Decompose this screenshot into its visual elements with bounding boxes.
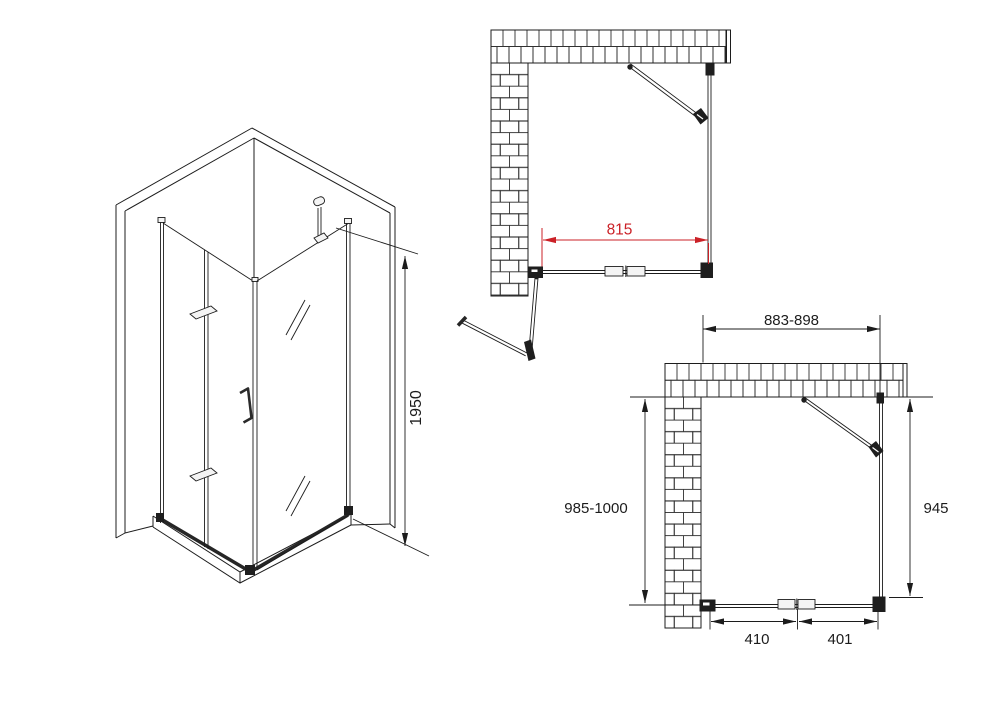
door-hinge-top: [190, 306, 217, 319]
brick-wall-left: [665, 397, 701, 628]
iso-support-post: [313, 196, 328, 243]
iso-view: 1950: [116, 128, 429, 583]
glass-shine-marks: [286, 300, 310, 516]
brick-wall-top: [665, 364, 903, 398]
iso-side-panel: [257, 219, 352, 571]
fold-clamp-right: [627, 267, 645, 277]
fold-hinge-block: [524, 340, 536, 362]
iso-walls: [116, 128, 395, 538]
wall-end-cap: [903, 364, 907, 398]
height-dimension-label: 1950: [408, 390, 425, 426]
door-hinge-bottom: [190, 468, 217, 481]
door-half-left-label: 410: [744, 631, 769, 648]
fixed-side-panel: [877, 393, 885, 608]
fold-clamp-left: [605, 267, 623, 277]
front-width-label: 883-898: [764, 312, 819, 329]
support-bar: [801, 397, 883, 457]
wall-end-cap: [727, 30, 731, 63]
fixed-side-panel: [706, 64, 715, 269]
support-bar: [627, 64, 708, 125]
door-handle: [240, 389, 252, 423]
side-depth-label: 985-1000: [564, 500, 627, 517]
wall-anchor-bracket: [877, 393, 885, 404]
bottom-rail-left: [161, 519, 249, 571]
side-panel-dimension: 945: [889, 399, 949, 598]
corner-bracket: [701, 263, 714, 279]
plan-closed-view: 883-898 985-1000 945 410 401: [564, 312, 948, 648]
brick-wall-top: [491, 30, 726, 63]
entry-width-label: 815: [607, 222, 633, 239]
bottom-rail-right: [252, 515, 348, 571]
plan-open-view: 815: [458, 30, 731, 361]
bifold-door-closed: [700, 597, 886, 613]
entry-width-dimension: 815: [542, 222, 709, 267]
fold-clamp-left: [778, 600, 795, 610]
drawing-canvas: 1950: [0, 0, 1000, 707]
fold-clamp-right: [798, 600, 815, 610]
iso-bifold-door: [158, 218, 253, 550]
side-panel-label: 945: [923, 500, 948, 517]
door-half-right-label: 401: [827, 631, 852, 648]
wall-anchor-bracket: [706, 64, 715, 76]
iso-corner-post: [252, 278, 258, 571]
brick-wall-left: [491, 63, 528, 296]
door-halves-dimensions: 410 401: [710, 609, 878, 648]
technical-drawing: 1950: [0, 0, 1000, 707]
corner-bracket: [873, 597, 886, 613]
bifold-door-closed: [529, 263, 714, 279]
